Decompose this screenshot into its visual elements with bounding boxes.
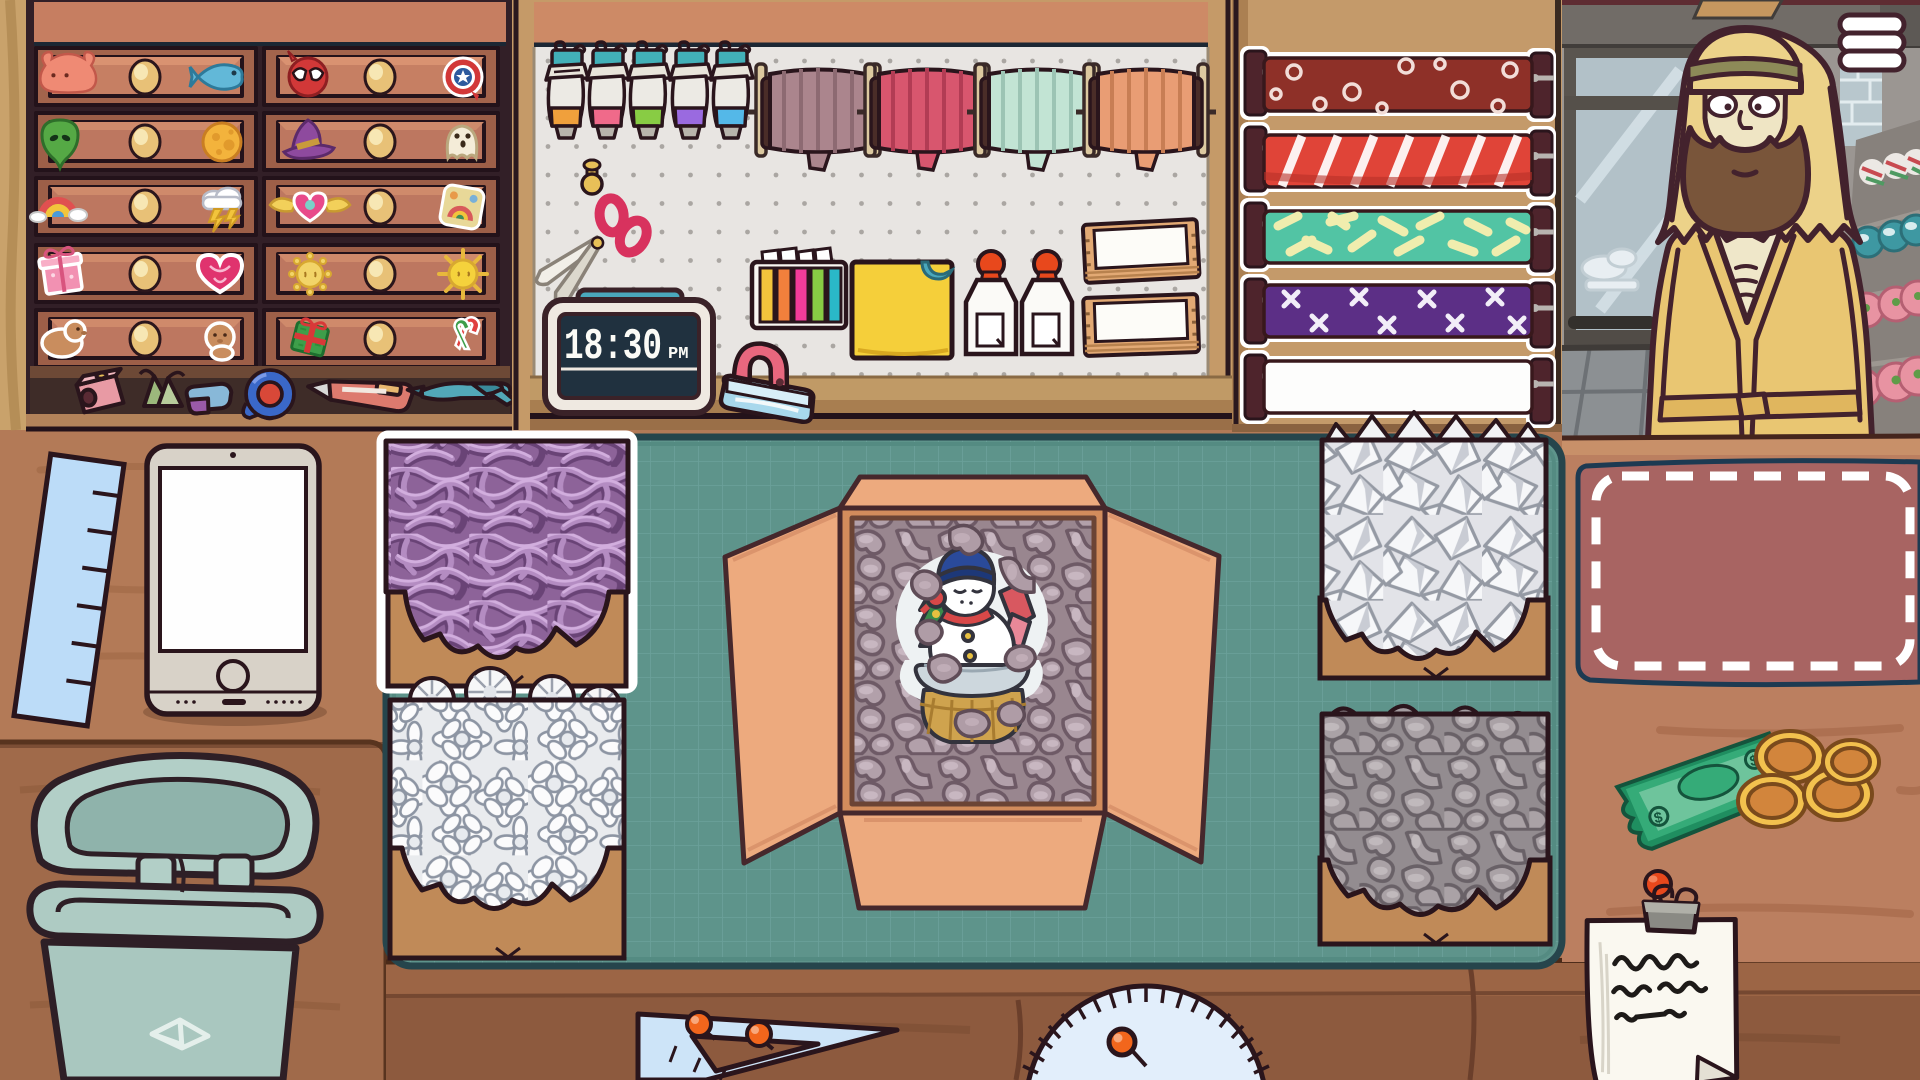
svg-text:PM: PM: [668, 345, 688, 364]
svg-text:18:30: 18:30: [564, 322, 662, 372]
